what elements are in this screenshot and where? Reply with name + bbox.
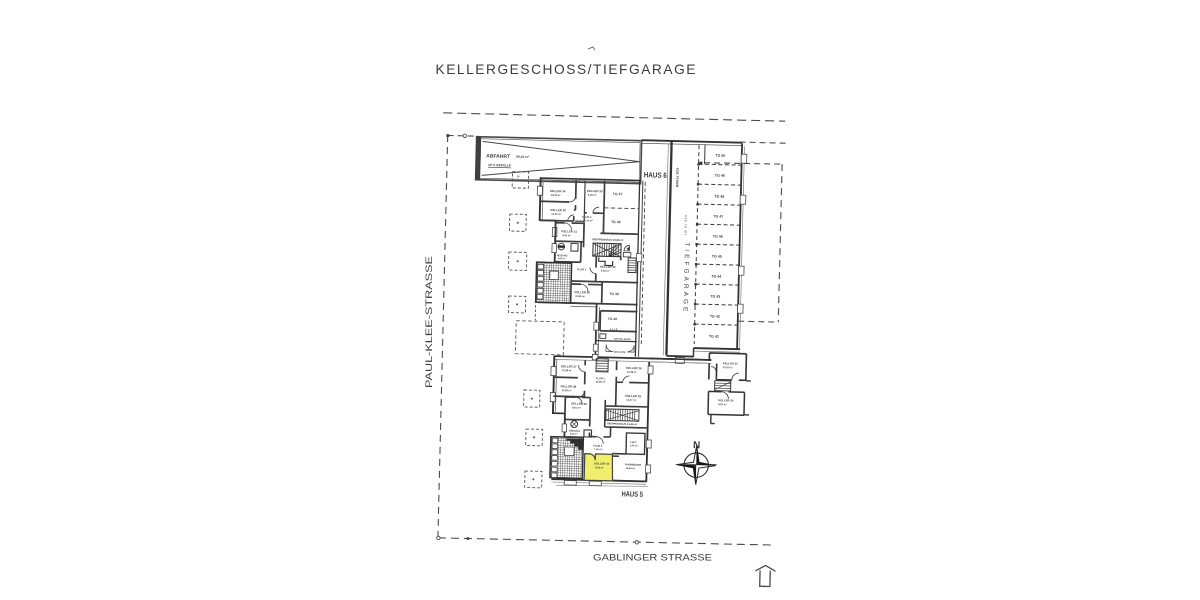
svg-text:TREPPENHAUS 15,86 m²: TREPPENHAUS 15,86 m² — [607, 421, 638, 426]
svg-text:8,91 m²: 8,91 m² — [572, 405, 581, 409]
svg-text:96,44 m²: 96,44 m² — [516, 155, 529, 159]
svg-text:KELLER 33: KELLER 33 — [587, 189, 603, 193]
svg-text:LÜFT.: LÜFT. — [630, 441, 637, 444]
svg-text:11,38 m²: 11,38 m² — [627, 370, 637, 374]
svg-text:10,98 m²: 10,98 m² — [562, 368, 572, 372]
svg-text:20,96 m²: 20,96 m² — [596, 380, 606, 384]
svg-text:11,96 m²: 11,96 m² — [575, 294, 585, 298]
svg-text:2 x 1 R: 2 x 1 R — [610, 329, 618, 331]
svg-text:KELLER 30: KELLER 30 — [594, 461, 610, 465]
svg-text:12,17 m²: 12,17 m² — [626, 398, 636, 402]
svg-text:KELLER 25: KELLER 25 — [625, 394, 641, 398]
svg-text:TG 47: TG 47 — [713, 214, 723, 218]
svg-text:TREPPENHAUS 15,86 m²: TREPPENHAUS 15,86 m² — [592, 237, 624, 242]
svg-text:10,97 m²: 10,97 m² — [723, 365, 733, 369]
svg-text:13,00 m²: 13,00 m² — [551, 212, 561, 216]
svg-text:KELLER 34: KELLER 34 — [550, 189, 566, 193]
svg-text:TIEFGARAGE: TIEFGARAGE — [681, 242, 690, 311]
svg-text:10,14 m²: 10,14 m² — [583, 218, 593, 222]
svg-text:HAUS 6: HAUS 6 — [644, 170, 667, 180]
svg-text:TG 40: TG 40 — [608, 317, 618, 321]
svg-text:7,35 m²: 7,35 m² — [594, 447, 603, 451]
svg-text:KELLER 26: KELLER 26 — [626, 366, 642, 370]
svg-text:415,76 m²: 415,76 m² — [683, 215, 688, 236]
svg-text:TG 45: TG 45 — [712, 254, 722, 258]
svg-text:8,91 m²: 8,91 m² — [718, 402, 727, 406]
svg-text:KELLER 29: KELLER 29 — [718, 398, 734, 402]
svg-text:9,06 m²: 9,06 m² — [570, 433, 578, 436]
svg-text:TG 46: TG 46 — [713, 234, 723, 238]
svg-text:9,06 m²: 9,06 m² — [601, 269, 610, 273]
svg-text:ABSTELLRAUM: ABSTELLRAUM — [614, 338, 631, 341]
svg-text:TG 41: TG 41 — [709, 334, 719, 338]
svg-text:KELLER 31: KELLER 31 — [561, 229, 577, 233]
svg-text:TG 44: TG 44 — [711, 274, 721, 278]
svg-text:19,68 m²: 19,68 m² — [626, 466, 636, 470]
svg-text:HEIZUNG: HEIZUNG — [569, 430, 580, 433]
svg-text:TG 49: TG 49 — [715, 174, 725, 178]
svg-text:HAUS 5: HAUS 5 — [621, 489, 643, 499]
svg-text:9,91 m²: 9,91 m² — [595, 465, 604, 469]
svg-text:10,98 m²: 10,98 m² — [561, 388, 571, 392]
svg-text:9,06 m²: 9,06 m² — [562, 233, 571, 237]
svg-text:TG 43: TG 43 — [710, 294, 720, 298]
svg-text:KELLERGESCHOSS/TIEFGARAGE: KELLERGESCHOSS/TIEFGARAGE — [436, 61, 698, 77]
svg-text:KELLER 35: KELLER 35 — [723, 361, 739, 365]
svg-text:KELLER 27: KELLER 27 — [561, 364, 577, 368]
svg-text:KELLER 32: KELLER 32 — [600, 265, 616, 269]
svg-text:9,48 m²: 9,48 m² — [588, 193, 597, 197]
svg-text:9,06 m²: 9,06 m² — [558, 257, 566, 260]
svg-text:438,70üNN: 438,70üNN — [478, 145, 482, 160]
svg-text:TG 50: TG 50 — [715, 154, 725, 158]
svg-text:TG 42: TG 42 — [710, 314, 720, 318]
svg-text:14: 14 — [517, 175, 520, 178]
svg-text:438,70üNN: 438,70üNN — [675, 168, 679, 188]
svg-text:16,53 m²: 16,53 m² — [551, 193, 561, 197]
svg-text:KELLER 30: KELLER 30 — [550, 208, 566, 212]
svg-text:TG 38: TG 38 — [611, 220, 621, 224]
svg-text:6,06 m²: 6,06 m² — [630, 444, 638, 447]
svg-text:PAUL-KLEE-STRASSE: PAUL-KLEE-STRASSE — [424, 256, 434, 388]
svg-text:HEIZUNG: HEIZUNG — [557, 254, 568, 257]
svg-text:TG 48: TG 48 — [714, 195, 724, 199]
svg-text:KELLER 28: KELLER 28 — [561, 384, 577, 388]
svg-text:SCHLEUSE: SCHLEUSE — [613, 352, 625, 354]
svg-text:TG 37: TG 37 — [613, 192, 623, 196]
svg-text:KELLER 29: KELLER 29 — [571, 402, 587, 406]
svg-text:TG 39: TG 39 — [609, 292, 619, 296]
svg-text:18 % GEFÄLLE: 18 % GEFÄLLE — [488, 163, 511, 168]
svg-text:FLUR 1: FLUR 1 — [577, 267, 587, 271]
svg-text:ABFAHRT: ABFAHRT — [486, 153, 510, 160]
svg-text:GABLINGER STRASSE: GABLINGER STRASSE — [593, 553, 712, 564]
